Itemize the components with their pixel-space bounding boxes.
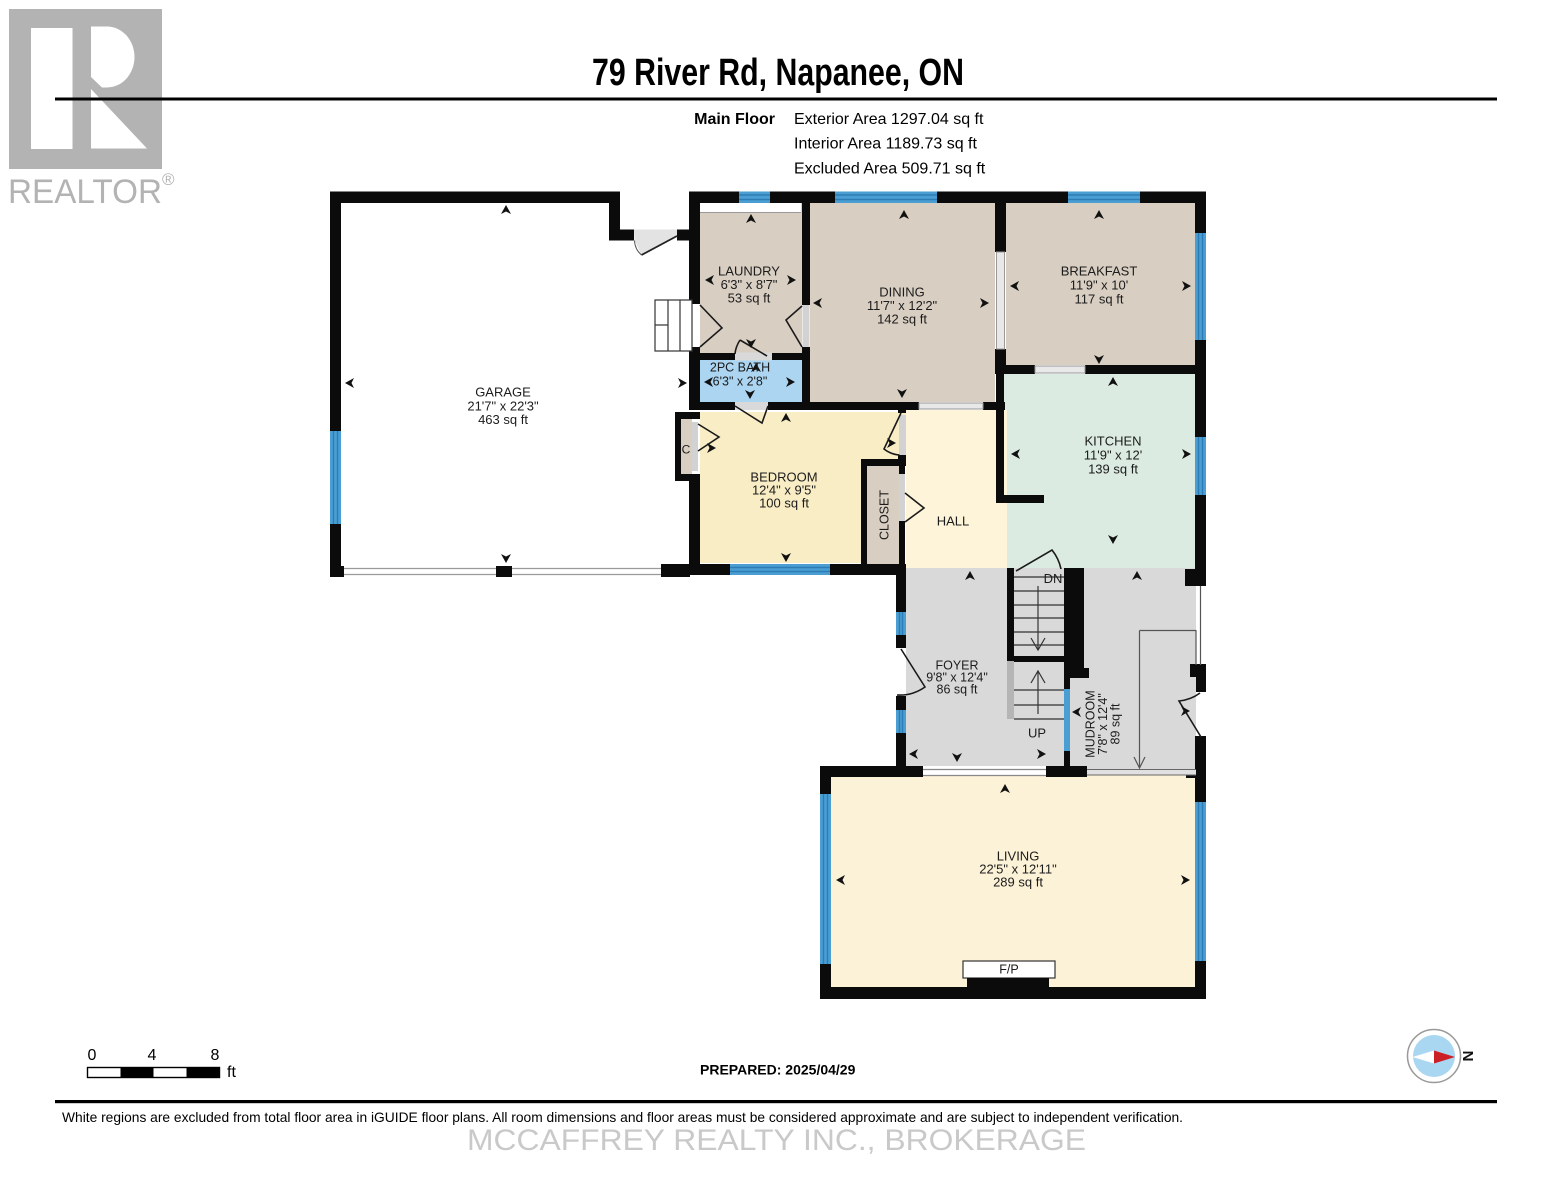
svg-text:86 sq ft: 86 sq ft [937,683,979,697]
svg-text:463 sq ft: 463 sq ft [478,412,528,427]
svg-text:0: 0 [88,1047,97,1064]
svg-text:2PC BATH: 2PC BATH [710,361,770,375]
svg-text:117 sq ft: 117 sq ft [1075,292,1124,307]
svg-text:11'9" x 12': 11'9" x 12' [1084,448,1143,463]
svg-text:289 sq ft: 289 sq ft [993,875,1043,890]
svg-text:11'9" x 10': 11'9" x 10' [1070,278,1129,293]
svg-text:GARAGE: GARAGE [475,385,531,400]
svg-text:BREAKFAST: BREAKFAST [1061,264,1138,279]
svg-text:®: ® [162,170,175,189]
svg-text:100 sq ft: 100 sq ft [759,496,809,511]
svg-text:Main Floor: Main Floor [694,111,775,128]
svg-text:MCCAFFREY REALTY INC., BROKERA: MCCAFFREY REALTY INC., BROKERAGE [467,1124,1086,1157]
svg-text:79 River Rd, Napanee, ON: 79 River Rd, Napanee, ON [592,52,964,94]
svg-text:Exterior Area 1297.04 sq ft: Exterior Area 1297.04 sq ft [794,111,984,128]
svg-text:89 sq ft: 89 sq ft [1109,703,1123,745]
svg-text:DN: DN [1044,571,1063,586]
svg-text:ft: ft [227,1064,236,1081]
svg-text:Interior Area 1189.73 sq ft: Interior Area 1189.73 sq ft [794,136,977,153]
svg-text:HALL: HALL [937,514,970,529]
svg-text:N: N [1459,1051,1476,1062]
svg-text:White regions are excluded fro: White regions are excluded from total fl… [62,1109,1183,1125]
svg-text:PREPARED: 2025/04/29: PREPARED: 2025/04/29 [700,1062,856,1078]
svg-text:F/P: F/P [999,963,1018,977]
svg-text:C: C [682,443,691,457]
svg-text:53 sq ft: 53 sq ft [728,291,771,306]
svg-text:KITCHEN: KITCHEN [1084,434,1141,449]
svg-text:139 sq ft: 139 sq ft [1088,462,1138,477]
svg-text:6'3" x 2'8": 6'3" x 2'8" [713,375,768,389]
svg-text:4: 4 [148,1047,157,1064]
svg-text:UP: UP [1028,726,1046,741]
svg-text:Excluded Area 509.71 sq ft: Excluded Area 509.71 sq ft [794,161,986,178]
svg-text:142 sq ft: 142 sq ft [877,312,927,327]
svg-text:8: 8 [211,1047,220,1064]
svg-text:REALTOR: REALTOR [8,173,162,211]
svg-text:CLOSET: CLOSET [878,490,892,540]
